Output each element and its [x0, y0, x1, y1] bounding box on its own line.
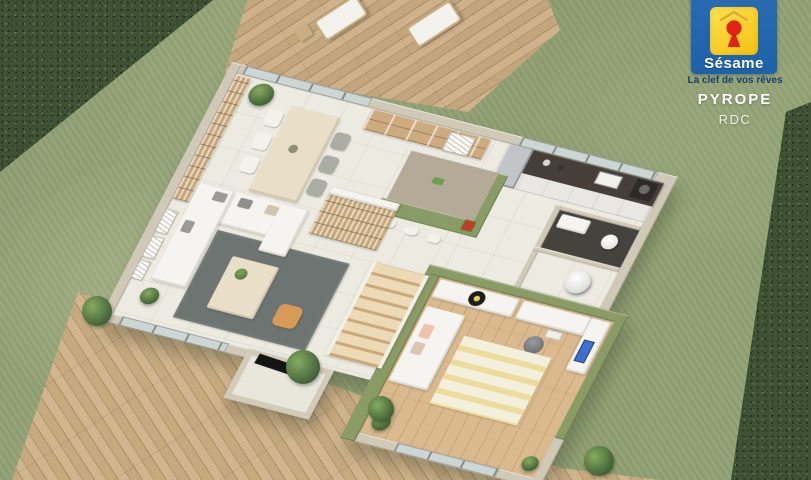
brand-top-text: MAISONS: [691, 0, 777, 2]
plan-name: PYROPE: [660, 91, 810, 108]
terrace-plant: [584, 446, 614, 476]
plan-level-label: RDC: [660, 112, 810, 127]
brand-name: Sésame: [691, 55, 777, 72]
keyhole-house-icon: [710, 7, 758, 55]
floor-plan-render: MAISONS Sésame La clef de vos rêves PYRO…: [0, 0, 811, 480]
terrace-plant: [82, 296, 112, 326]
keyhole-house-svg: [710, 7, 758, 55]
brand-logo-card: MAISONS Sésame: [691, 0, 777, 74]
brand-tagline: La clef de vos rêves: [660, 75, 810, 86]
terrace-plant: [368, 396, 394, 422]
terrace-plant: [286, 350, 320, 384]
